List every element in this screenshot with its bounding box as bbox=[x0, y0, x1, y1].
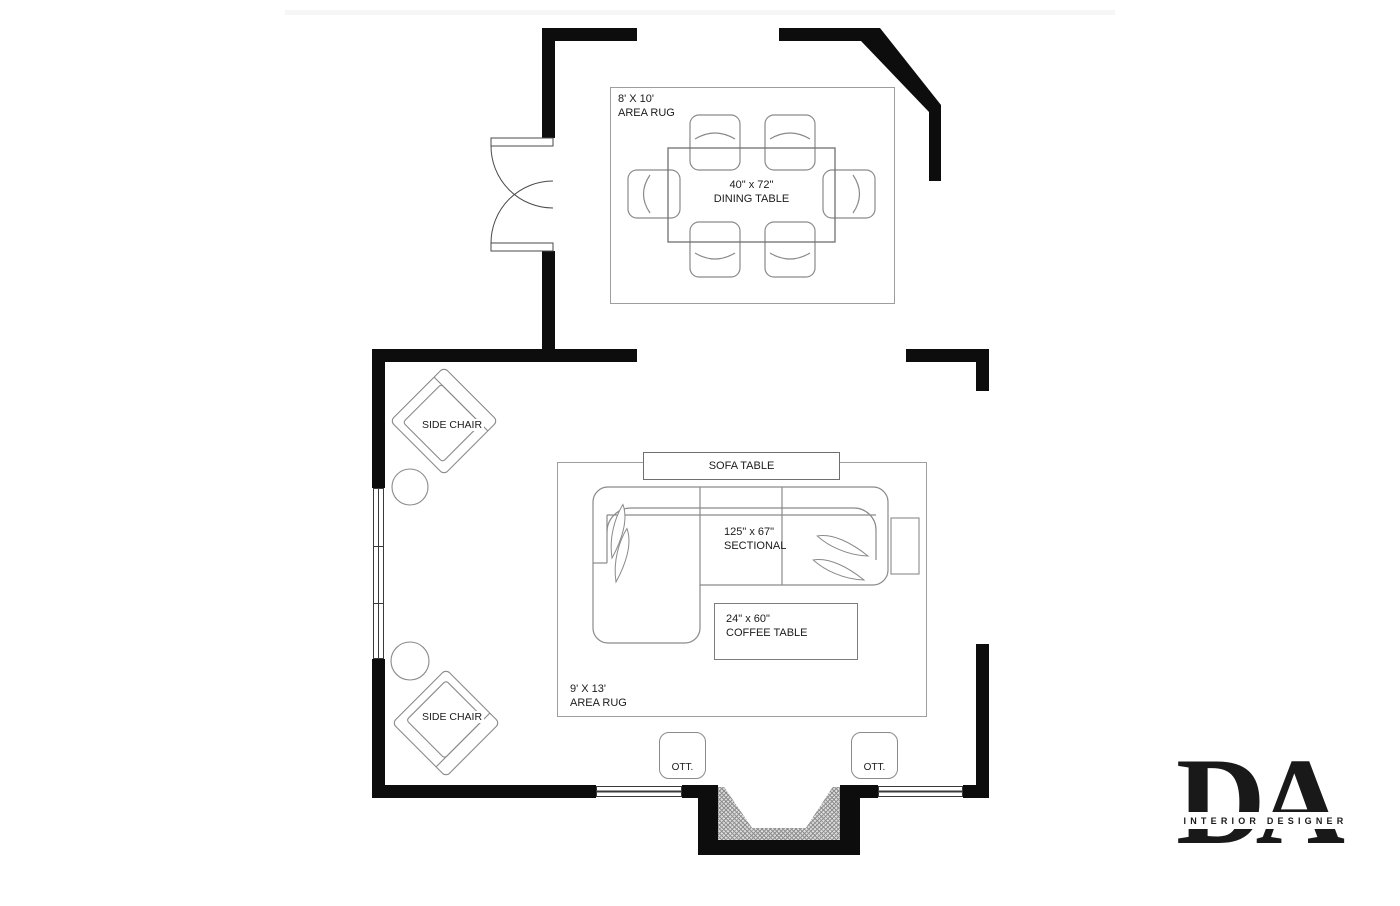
door-swing-arc-bottom bbox=[491, 181, 553, 243]
dining-chair-bottom-right bbox=[765, 222, 815, 277]
floor-plan-canvas: SOFA TABLE 24" x 60"COFFEE TABLE OTT. OT… bbox=[0, 0, 1400, 906]
coffee-table-name: COFFEE TABLE bbox=[726, 627, 808, 639]
wall-diagonal bbox=[861, 28, 941, 181]
door-leaf-bottom bbox=[491, 243, 553, 251]
side-chair-top-label: SIDE CHAIR bbox=[420, 419, 484, 431]
sectional-name: SECTIONAL bbox=[724, 540, 786, 552]
side-chair-bottom-label: SIDE CHAIR bbox=[420, 711, 484, 723]
living-rug-label: 9' X 13'AREA RUG bbox=[570, 682, 627, 710]
door-leaf-top bbox=[491, 138, 553, 146]
sofa-table-label: SOFA TABLE bbox=[709, 460, 775, 472]
dining-chair-top-left bbox=[690, 115, 740, 170]
sectional-label: 125" x 67"SECTIONAL bbox=[724, 525, 786, 553]
logo-monogram: DA bbox=[1176, 740, 1335, 864]
ottoman-left-label: OTT. bbox=[672, 762, 694, 773]
designer-logo: DA INTERIOR DESIGNER bbox=[1168, 740, 1368, 890]
ottoman-right: OTT. bbox=[851, 732, 898, 779]
end-table bbox=[891, 518, 919, 574]
coffee-table-size: 24" x 60" bbox=[726, 613, 770, 625]
dining-chair-top-right bbox=[765, 115, 815, 170]
logo-tagline: INTERIOR DESIGNER bbox=[1163, 812, 1368, 829]
ottoman-left: OTT. bbox=[659, 732, 706, 779]
dining-table-size: 40" x 72" bbox=[730, 179, 774, 191]
double-door bbox=[491, 138, 553, 251]
sectional-size: 125" x 67" bbox=[724, 526, 774, 538]
dining-rug-label: 8' X 10'AREA RUG bbox=[618, 92, 675, 120]
dining-rug-size: 8' X 10' bbox=[618, 93, 654, 105]
dining-chair-bottom-left bbox=[690, 222, 740, 277]
coffee-table-label: 24" x 60"COFFEE TABLE bbox=[726, 612, 808, 640]
side-chair-bottom bbox=[392, 669, 499, 776]
dining-table-label: 40" x 72"DINING TABLE bbox=[668, 178, 835, 206]
living-rug-type: AREA RUG bbox=[570, 697, 627, 709]
ottoman-right-label: OTT. bbox=[864, 762, 886, 773]
sofa-table: SOFA TABLE bbox=[643, 452, 840, 480]
living-rug-size: 9' X 13' bbox=[570, 683, 606, 695]
door-swing-arc-top bbox=[491, 146, 553, 208]
round-side-table-bottom bbox=[391, 642, 429, 680]
round-side-table-top bbox=[392, 469, 428, 505]
dining-table-name: DINING TABLE bbox=[714, 193, 789, 205]
dining-rug-type: AREA RUG bbox=[618, 107, 675, 119]
